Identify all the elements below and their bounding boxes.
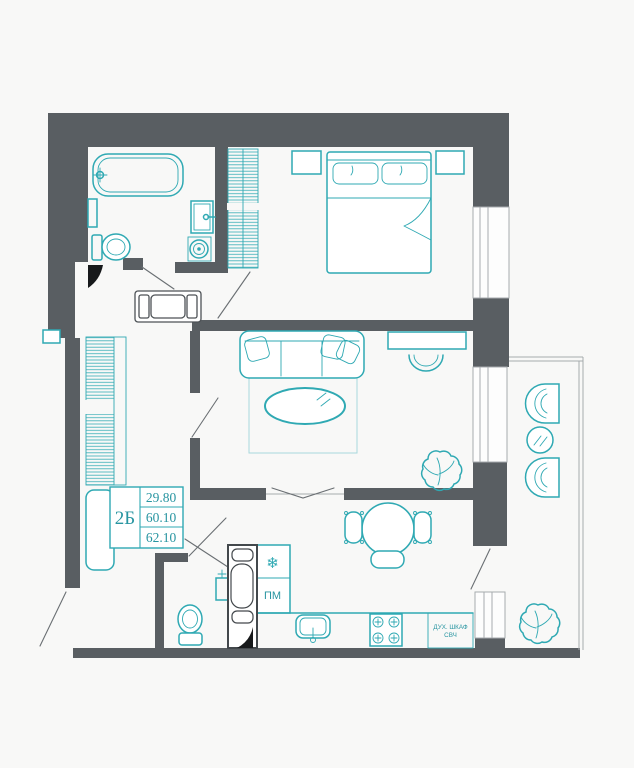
balcony-table xyxy=(527,427,553,453)
balcony-chair xyxy=(526,458,560,497)
kitchen-door-swing xyxy=(185,539,231,569)
oven-label-line1: ДУХ. ШКАФ xyxy=(433,624,467,631)
area-value-living: 29.80 xyxy=(146,490,177,505)
opening-chevron-icon xyxy=(272,488,334,498)
floor-plan-page: 2Б 29.80 60.10 62.10 ❄ xyxy=(0,0,634,768)
dishwasher-label: ПМ xyxy=(264,590,281,602)
living-room xyxy=(240,331,466,490)
wc-door-swing xyxy=(189,518,226,556)
desk xyxy=(388,332,466,349)
bedroom-window xyxy=(473,207,509,298)
wall-top xyxy=(48,113,509,147)
bathtub xyxy=(93,154,183,196)
wc-toilet xyxy=(178,605,202,645)
stove xyxy=(370,614,402,646)
wall-right-2 xyxy=(473,298,509,367)
balcony-glazing-right xyxy=(579,357,583,650)
dining-chair xyxy=(345,512,362,543)
wall-living-bottom-right xyxy=(344,488,475,500)
entrance-door-swing xyxy=(40,592,66,646)
electric-panel xyxy=(43,330,60,343)
windows xyxy=(473,207,583,650)
nightstand-right xyxy=(436,151,464,174)
wall-bathroom-bottom-stub xyxy=(123,258,143,270)
kitchen-sink xyxy=(296,615,330,643)
living-kitchen-opening xyxy=(266,488,344,498)
living-door-swing xyxy=(192,398,218,437)
wall-bathroom-right xyxy=(215,147,228,270)
oven-label-line2: СВЧ xyxy=(444,632,457,639)
dining-table xyxy=(345,503,432,568)
hall-wardrobe xyxy=(85,337,126,485)
balcony-door-swing xyxy=(471,549,490,589)
entry-bench xyxy=(135,291,201,322)
bedroom-door-swing xyxy=(218,272,250,318)
sofa xyxy=(240,331,364,378)
kitchen-window xyxy=(475,592,505,638)
fridge-snowflake-icon: ❄ xyxy=(266,555,279,572)
desk-chair xyxy=(409,355,443,371)
dining-chair xyxy=(414,512,431,543)
wall-left-mid xyxy=(48,262,75,338)
wall-bathroom-bottom xyxy=(175,262,228,273)
balcony-plant xyxy=(520,604,560,643)
bathroom-sink xyxy=(191,201,215,233)
wall-right-3 xyxy=(473,462,507,546)
oven-microwave-cabinet: ДУХ. ШКАФ СВЧ xyxy=(428,613,473,648)
floor-plan: 2Б 29.80 60.10 62.10 ❄ xyxy=(0,0,634,768)
bathroom-door-swing xyxy=(142,267,174,289)
wall-bedroom-living-divider xyxy=(192,320,475,331)
unit-name: 2Б xyxy=(115,508,135,529)
wall-right-4 xyxy=(475,638,505,653)
balcony-chair xyxy=(526,384,560,423)
balcony xyxy=(520,384,560,643)
vent-shaft-icon xyxy=(88,265,103,288)
bedroom-wardrobe xyxy=(227,149,259,268)
wall-living-bottom-left xyxy=(190,488,266,500)
water-heater xyxy=(216,570,228,600)
bed xyxy=(327,152,431,273)
kitchen: ❄ ПМ ДУХ. ШКАФ СВЧ xyxy=(255,503,473,648)
bathroom-shelf xyxy=(88,199,97,227)
washing-machine xyxy=(188,237,211,261)
plant xyxy=(422,451,462,490)
balcony-glazing-top xyxy=(509,357,583,361)
area-value-apartment: 60.10 xyxy=(146,510,177,525)
coffee-table xyxy=(265,388,345,424)
living-window xyxy=(473,367,507,462)
vent-shaft xyxy=(228,545,257,648)
dining-chair xyxy=(371,551,404,568)
wall-left-lower xyxy=(65,338,80,588)
wall-living-left-upper xyxy=(190,331,200,393)
nightstand-left xyxy=(292,151,321,174)
wall-right-1 xyxy=(473,147,509,207)
wall-wc-left xyxy=(155,553,164,648)
fridge: ❄ xyxy=(255,545,290,613)
bedroom xyxy=(227,149,464,273)
unit-label-table: 2Б 29.80 60.10 62.10 xyxy=(110,487,183,548)
toilet xyxy=(92,234,130,260)
bathroom xyxy=(88,154,215,261)
wall-left-upper xyxy=(48,147,88,262)
area-value-total: 62.10 xyxy=(146,530,177,545)
